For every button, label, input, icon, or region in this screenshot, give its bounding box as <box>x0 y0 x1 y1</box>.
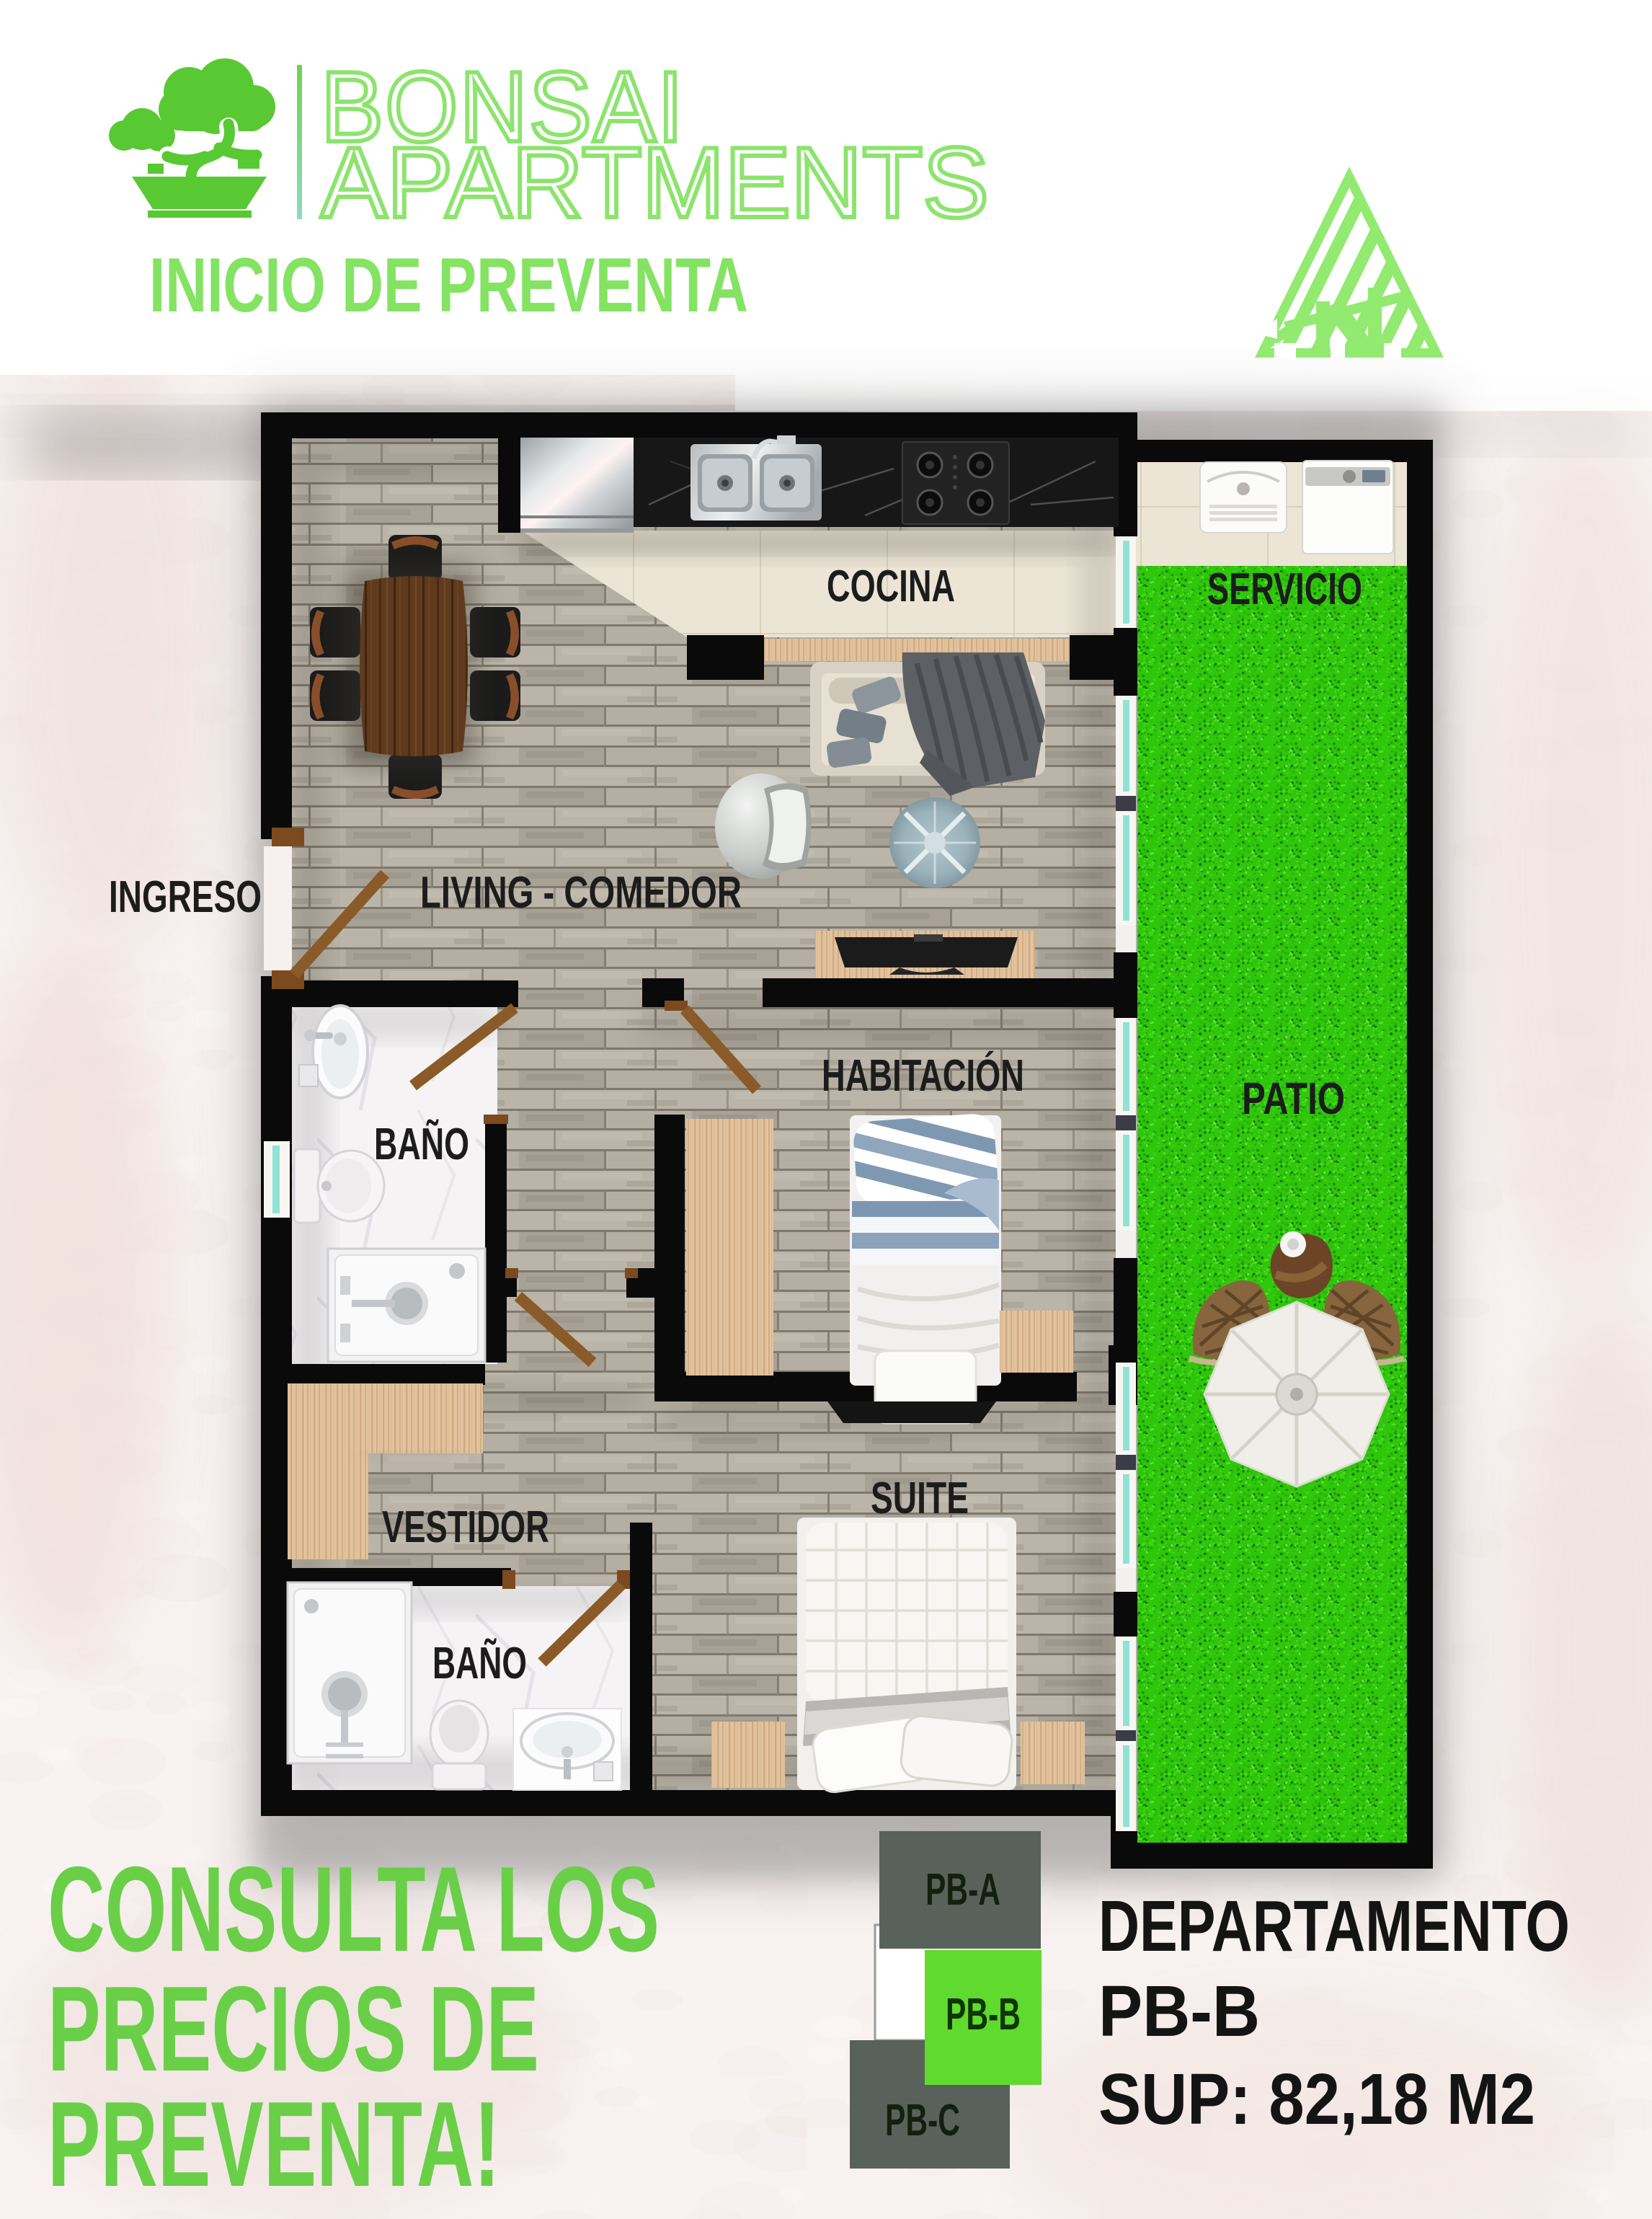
svg-text:SUITE: SUITE <box>871 1474 969 1523</box>
svg-text:LIVING - COMEDOR: LIVING - COMEDOR <box>420 868 742 918</box>
svg-text:PB-A: PB-A <box>925 1865 1000 1915</box>
svg-text:SUP: 82,18 M2: SUP: 82,18 M2 <box>1098 2059 1535 2140</box>
svg-text:DEPARTAMENTO: DEPARTAMENTO <box>1098 1886 1570 1967</box>
svg-text:INGRESO: INGRESO <box>109 872 262 922</box>
svg-text:APARTMENTS: APARTMENTS <box>321 127 989 239</box>
svg-text:VESTIDOR: VESTIDOR <box>382 1502 549 1552</box>
svg-text:BAÑO: BAÑO <box>432 1639 527 1688</box>
svg-text:SERVICIO: SERVICIO <box>1207 564 1362 614</box>
svg-text:PB-B: PB-B <box>946 1990 1021 2039</box>
svg-text:PB-B: PB-B <box>1098 1971 1260 2052</box>
svg-text:PREVENTA!: PREVENTA! <box>48 2076 500 2212</box>
svg-text:PB-C: PB-C <box>885 2096 960 2145</box>
svg-text:HABITACIÓN: HABITACIÓN <box>822 1051 1024 1101</box>
svg-text:COCINA: COCINA <box>827 562 955 611</box>
svg-text:BAÑO: BAÑO <box>374 1120 469 1169</box>
svg-text:INICIO DE PREVENTA: INICIO DE PREVENTA <box>149 242 748 328</box>
svg-text:CONSULTA LOS: CONSULTA LOS <box>48 1841 660 1977</box>
svg-text:PATIO: PATIO <box>1242 1074 1345 1124</box>
